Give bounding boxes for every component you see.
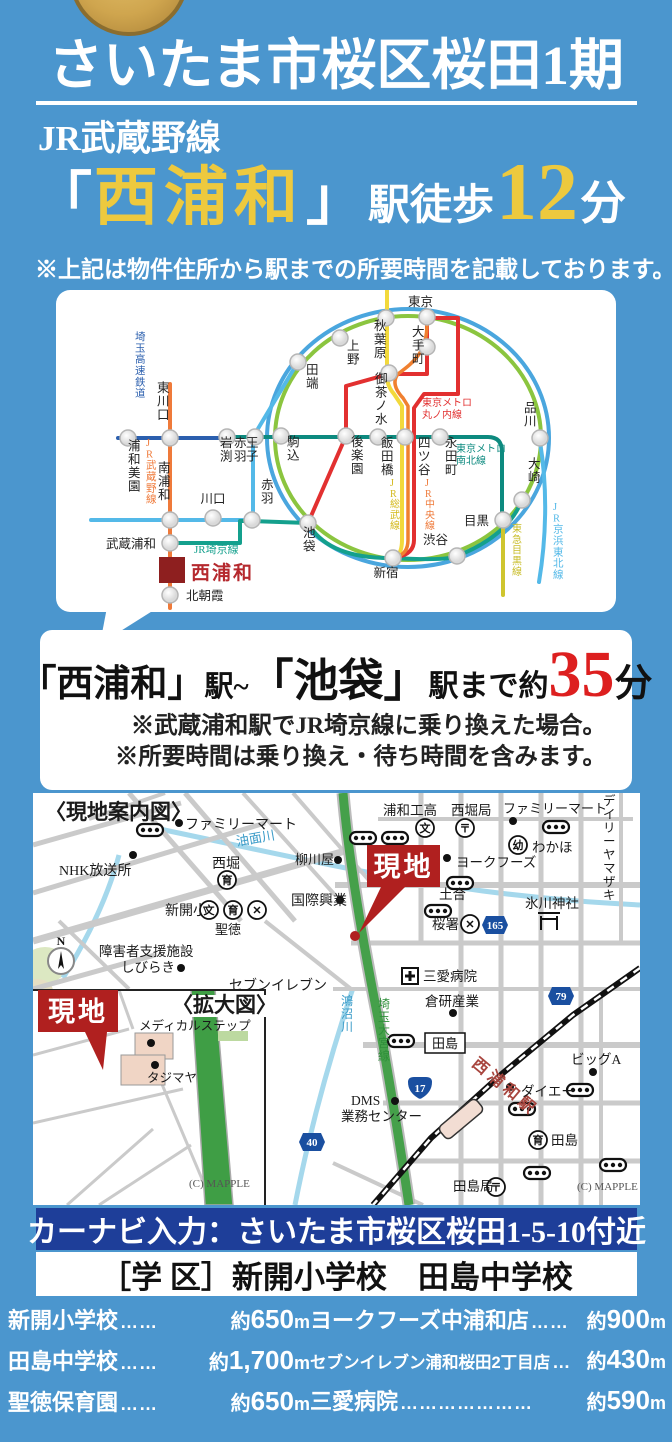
map-label: 〈現地案内図〉 xyxy=(45,800,192,824)
distance-row: 聖徳保育園…… 約650m xyxy=(8,1385,310,1417)
site-marker-label: 現地 xyxy=(374,852,434,882)
route-shield-40: 40 xyxy=(299,1133,325,1151)
map-label: しびらき xyxy=(121,960,175,975)
map-label: 三愛病院 xyxy=(423,969,477,984)
map-label: 桜署 xyxy=(432,917,459,932)
map-label: 浦和工高 xyxy=(383,802,437,818)
station-node xyxy=(449,548,465,564)
dot-icon xyxy=(443,854,451,862)
distance-row: 新開小学校…… 約650m xyxy=(8,1303,310,1335)
station-node xyxy=(162,535,178,551)
route-shield-number: 17 xyxy=(415,1083,427,1095)
bus-icon xyxy=(600,1159,626,1171)
map-label: ファミリーマート xyxy=(185,818,297,833)
station-node xyxy=(419,309,435,325)
access-from: 「西浦和」 xyxy=(19,653,204,707)
dotted-leader: …… xyxy=(120,1353,207,1374)
poi-distance: 約900m xyxy=(587,1304,666,1335)
station-node xyxy=(205,510,221,526)
station-node xyxy=(162,512,178,528)
distance-column-left: 新開小学校…… 約650m田島中学校…… 約1,700m聖徳保育園…… 約650… xyxy=(8,1303,310,1426)
station-label: 王子 xyxy=(246,436,259,464)
station-label: 浦和美園 xyxy=(128,439,141,494)
station-label: JR中央線 xyxy=(425,478,435,532)
poi-distance: 約650m xyxy=(231,1386,310,1417)
dot-icon xyxy=(177,964,185,972)
dot-icon xyxy=(129,851,137,859)
station-label: 田端 xyxy=(306,363,319,391)
area-map-panel: 田島165791740文文育育育幼〒〒✕✕N〈現地案内図〉ファミリーマート油面川… xyxy=(33,793,640,1205)
svg-text:育: 育 xyxy=(222,873,233,887)
map-label: 田島 xyxy=(551,1133,578,1148)
svg-text:幼: 幼 xyxy=(513,838,524,852)
dot-icon xyxy=(151,1061,159,1069)
station-label: 東京 xyxy=(408,295,433,309)
walk-unit: 分 xyxy=(580,167,626,233)
poi-name: 田島中学校 xyxy=(8,1344,118,1376)
transit-diagram: 浦和美園東川口赤羽岩渕王子駒込後楽園飯田橋四ツ谷永田町田端上野秋葉原東京大手町御… xyxy=(56,290,616,612)
distance-row: ヨークフーズ中浦和店……約900m xyxy=(310,1303,666,1335)
walk-minutes: 12 xyxy=(496,151,578,233)
poi-name: 聖徳保育園 xyxy=(8,1385,118,1417)
〒-icon: 〒 xyxy=(456,819,474,837)
distance-row: 田島中学校…… 約1,700m xyxy=(8,1344,310,1376)
station-label: 武蔵浦和 xyxy=(106,537,156,551)
bus-icon xyxy=(543,821,569,833)
dot-icon xyxy=(391,1097,399,1105)
station-node xyxy=(162,430,178,446)
map-label: (C) MAPPLE xyxy=(577,1181,638,1193)
station-walk-row: 「 西浦和 」 駅徒歩 12 分 xyxy=(34,146,654,238)
map-label: 〈拡大図〉 xyxy=(172,993,277,1017)
poi-name: ヨークフーズ中浦和店 xyxy=(310,1303,529,1335)
station-node xyxy=(532,430,548,446)
poi-distance: 約590m xyxy=(587,1385,666,1416)
station-label: 北朝霞 xyxy=(186,589,224,603)
station-label: 南浦和 xyxy=(158,460,171,502)
dot-icon xyxy=(449,1009,457,1017)
station-label: 池袋 xyxy=(303,526,316,554)
access-time-panel: 「西浦和」 駅~ 「池袋」 駅まで約 35 分 ※武蔵浦和駅でJR埼京線に乗り換… xyxy=(40,630,632,790)
station-label: 岩渕 xyxy=(220,435,233,464)
station-label: 大手町 xyxy=(412,325,425,366)
station-label: 川口 xyxy=(200,492,225,506)
育-icon: 育 xyxy=(224,901,242,919)
map-label: 氷川神社 xyxy=(525,896,579,911)
map-label: (C) MAPPLE xyxy=(189,1178,250,1190)
walk-note: ※上記は物件住所から駅までの所要時間を記載しております。 xyxy=(35,250,672,284)
route-shield-number: 165 xyxy=(487,920,504,932)
station-label: 目黒 xyxy=(464,514,489,528)
transit-diagram-panel: 浦和美園東川口赤羽岩渕王子駒込後楽園飯田橋四ツ谷永田町田端上野秋葉原東京大手町御… xyxy=(56,290,616,612)
station-name: 西浦和 xyxy=(94,146,304,238)
dotted-leader: …… xyxy=(531,1312,585,1333)
文-icon: 文 xyxy=(416,819,434,837)
school-district-bar: ［学 区］新開小学校 田島中学校 xyxy=(36,1252,637,1296)
hosp-icon xyxy=(402,968,418,984)
station-label: JR総武線 xyxy=(390,478,400,532)
map-label: わかほ xyxy=(532,840,573,855)
access-note-line: ※所要時間は乗り換え・待ち時間を含みます。 xyxy=(40,742,606,773)
station-node xyxy=(162,587,178,603)
map-label: 聖徳 xyxy=(215,922,241,937)
station-node xyxy=(385,550,401,566)
map-label: ヨークフーズ xyxy=(456,855,536,870)
station-label: 赤羽 xyxy=(234,436,247,464)
poi-name: セブンイレブン浦和桜田2丁目店 xyxy=(310,1349,550,1373)
✕-icon: ✕ xyxy=(248,901,266,919)
station-label: JR京浜東北線 xyxy=(553,502,564,581)
title-divider xyxy=(36,101,637,105)
幼-icon: 幼 xyxy=(509,836,527,854)
map-label: DMS xyxy=(351,1093,380,1108)
map-label: 柳川屋 xyxy=(295,852,334,867)
station-label: 秋葉原 xyxy=(374,319,387,360)
page-title: さいたま市桜区桜田1期 xyxy=(0,20,672,100)
bus-icon xyxy=(137,824,163,836)
station-label: 御茶ノ水 xyxy=(375,371,388,427)
map-label: ファミリーマート xyxy=(503,801,607,816)
bus-icon xyxy=(350,832,376,844)
育-icon: 育 xyxy=(529,1131,547,1149)
station-label: 上野 xyxy=(347,339,360,367)
station-label: 東京メトロ xyxy=(422,396,472,409)
flyer-page: さいたま市桜区桜田1期 JR武蔵野線 「 西浦和 」 駅徒歩 12 分 ※上記は… xyxy=(0,0,672,1442)
map-label: ダイエー xyxy=(521,1084,575,1099)
station-label: 南北線 xyxy=(456,454,486,467)
map-label: タジマヤ xyxy=(147,1071,197,1085)
site-dot xyxy=(350,931,360,941)
highlight-station-marker xyxy=(159,557,185,583)
area-map: 田島165791740文文育育育幼〒〒✕✕N〈現地案内図〉ファミリーマート油面川… xyxy=(33,793,640,1205)
dot-icon xyxy=(509,817,517,825)
svg-text:〒: 〒 xyxy=(460,822,471,835)
svg-text:N: N xyxy=(57,934,66,948)
distance-row: セブンイレブン浦和桜田2丁目店…約430m xyxy=(310,1344,666,1375)
access-note-line: ※武蔵浦和駅でJR埼京線に乗り換えた場合。 xyxy=(40,711,606,742)
dotted-leader: … xyxy=(552,1352,584,1373)
✕-icon: ✕ xyxy=(461,915,479,933)
station-node xyxy=(495,512,511,528)
dotted-leader: …… xyxy=(120,1312,229,1333)
station-label: 飯田橋 xyxy=(381,435,394,477)
highlight-station-label: 西浦和 xyxy=(191,561,254,584)
distance-list: 新開小学校…… 約650m田島中学校…… 約1,700m聖徳保育園…… 約650… xyxy=(8,1303,666,1426)
dot-icon xyxy=(147,1039,155,1047)
map-label: 西堀局 xyxy=(451,803,492,818)
map-label: 業務センター xyxy=(341,1109,422,1124)
station-node xyxy=(397,429,413,445)
station-label: 品川 xyxy=(524,401,537,429)
map-label: 土合 xyxy=(439,887,466,902)
dot-icon xyxy=(589,1068,597,1076)
bus-icon xyxy=(382,832,408,844)
station-node xyxy=(244,512,260,528)
map-label: 埼玉大宮線 xyxy=(378,997,390,1063)
map-label: NHK放送所 xyxy=(59,863,131,879)
access-time-line: 「西浦和」 駅~ 「池袋」 駅まで約 35 分 xyxy=(40,644,632,709)
map-label: 田島局 xyxy=(453,1179,494,1194)
poi-distance: 約430m xyxy=(587,1344,666,1375)
station-label: 赤羽 xyxy=(261,478,274,506)
station-label: 大崎 xyxy=(528,457,541,485)
station-label: 埼玉高速鉄道 xyxy=(135,330,146,400)
poi-distance: 約650m xyxy=(231,1304,310,1335)
station-label: 丸ノ内線 xyxy=(422,408,462,421)
bus-icon xyxy=(388,1035,414,1047)
map-label: デイリーヤマザキ xyxy=(603,793,616,903)
svg-text:✕: ✕ xyxy=(465,919,474,931)
bracket-open: 「 xyxy=(34,152,92,236)
carnavi-bar: カーナビ入力：さいたま市桜区桜田1-5-10付近 xyxy=(36,1208,637,1250)
map-label: 新開小 xyxy=(165,903,207,919)
station-node xyxy=(514,492,530,508)
map-label: 倉研産業 xyxy=(425,994,479,1009)
station-label: 新宿 xyxy=(373,565,398,580)
access-notes: ※武蔵浦和駅でJR埼京線に乗り換えた場合。※所要時間は乗り換え・待ち時間を含みま… xyxy=(40,711,632,773)
map-label: 国際興業 xyxy=(291,893,347,909)
station-label: 駒込 xyxy=(287,435,300,463)
map-label: ビッグA xyxy=(571,1052,621,1067)
station-label: 東京メトロ xyxy=(456,442,506,455)
poi-name: 三愛病院 xyxy=(310,1384,398,1416)
map-label: メディカルステップ xyxy=(139,1018,251,1033)
svg-text:文: 文 xyxy=(420,821,432,835)
station-label: JR埼京線 xyxy=(194,542,239,556)
station-label: 東川口 xyxy=(157,381,170,422)
route-shield-165: 165 xyxy=(482,916,508,934)
boxed-label-text: 田島 xyxy=(432,1036,458,1051)
map-label: 障害者支援施設 xyxy=(99,944,194,959)
distance-column-right: ヨークフーズ中浦和店……約900mセブンイレブン浦和桜田2丁目店…約430m三愛… xyxy=(310,1303,666,1426)
station-label: 東急目黒線 xyxy=(512,522,522,578)
access-minutes: 35 xyxy=(549,645,615,704)
station-node xyxy=(332,330,348,346)
route-shield-79: 79 xyxy=(548,987,574,1005)
poi-distance: 約1,700m xyxy=(209,1345,310,1376)
station-label: 後楽園 xyxy=(351,435,364,476)
route-shield-number: 40 xyxy=(307,1137,319,1149)
svg-text:育: 育 xyxy=(228,903,239,917)
bus-icon xyxy=(425,905,451,917)
dotted-leader: …… xyxy=(120,1394,229,1415)
dotted-leader: ………………… xyxy=(400,1393,585,1414)
site-marker-label: 現地 xyxy=(48,997,108,1027)
dot-icon xyxy=(334,856,342,864)
access-to: 「池袋」 xyxy=(249,644,429,709)
map-label: 鴻沼川 xyxy=(341,994,353,1034)
育-icon: 育 xyxy=(218,871,236,889)
bus-icon xyxy=(524,1167,550,1179)
svg-text:育: 育 xyxy=(533,1133,544,1147)
station-label: 四ツ谷 xyxy=(418,436,431,477)
station-label: 渋谷 xyxy=(423,533,449,547)
station-label: JR武蔵野線 xyxy=(146,438,157,506)
walk-label: 駅徒歩 xyxy=(368,171,494,232)
map-label: セブンイレブン xyxy=(229,977,327,994)
bracket-close: 」 xyxy=(306,152,364,236)
map-label: 西堀 xyxy=(212,856,240,872)
svg-text:✕: ✕ xyxy=(252,905,261,917)
poi-name: 新開小学校 xyxy=(8,1303,118,1335)
route-shield-number: 79 xyxy=(556,991,568,1003)
distance-row: 三愛病院…………………約590m xyxy=(310,1384,666,1416)
station-node xyxy=(290,354,306,370)
